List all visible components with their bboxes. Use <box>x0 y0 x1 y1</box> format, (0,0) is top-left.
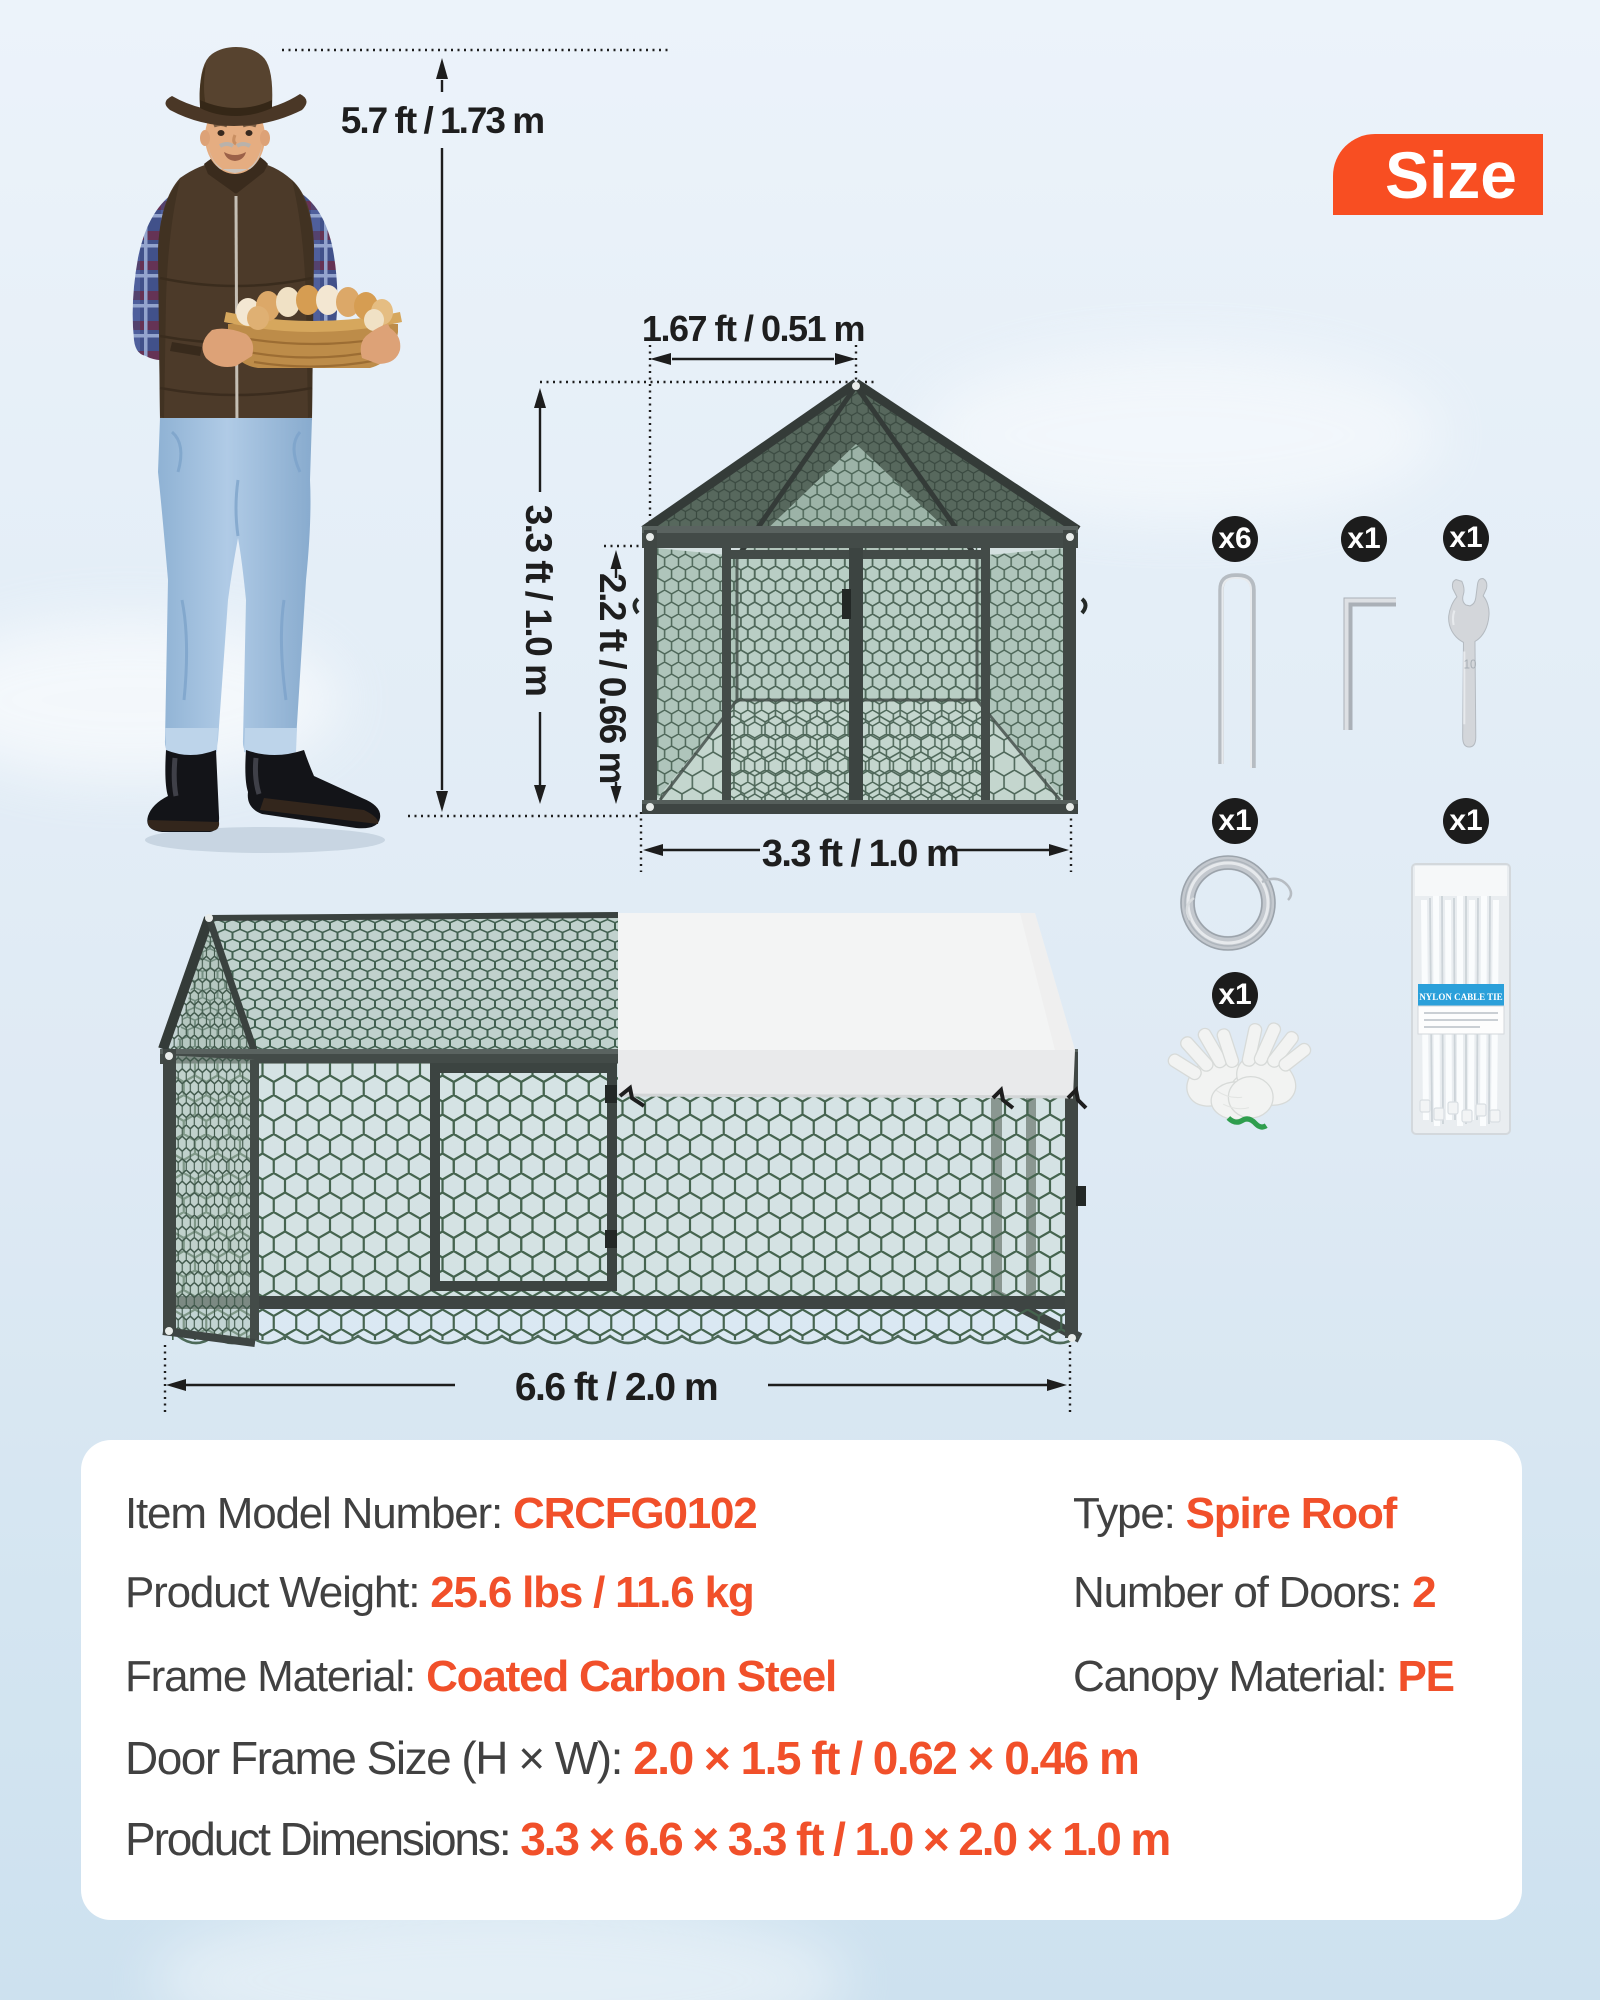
svg-text:10: 10 <box>1464 657 1477 672</box>
svg-text:NYLON CABLE TIE: NYLON CABLE TIE <box>1419 992 1502 1002</box>
